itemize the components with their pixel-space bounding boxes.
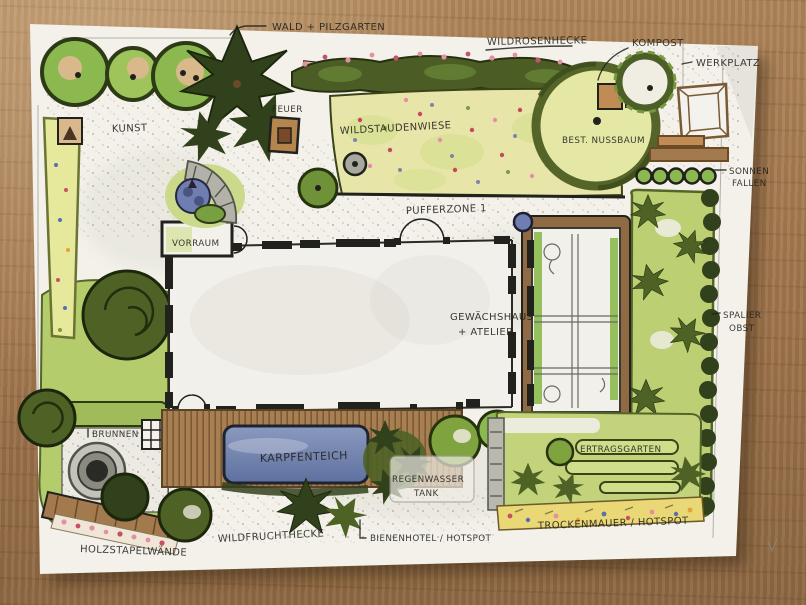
shrub-center-dot <box>315 185 321 191</box>
label-werkplatz: WERKPLATZ <box>696 58 760 69</box>
label-tank: TANK <box>413 489 439 499</box>
label-gewaechshaus-2: + ATELIER <box>458 327 513 338</box>
label-regenwasser: REGENWASSER <box>392 475 464 485</box>
boulder-dot <box>352 161 358 167</box>
label-vorraum: VORRAUM <box>172 239 220 249</box>
label-feuer: FEUER <box>272 105 303 115</box>
label-obst: OBST <box>729 324 755 334</box>
label-wildrosenhecke: WILDROSENHECKE <box>487 35 588 48</box>
label-best-nussbaum: BEST. NUSSBAUM <box>562 136 645 146</box>
label-gewaechshaus-1: GEWÄCHSHAUS <box>450 310 533 323</box>
label-sonnenfallen-1: SONNEN <box>729 167 769 177</box>
photo-of-garden-plan: WALD + PILZGARTEN WILDROSENHECKE KOMPOST… <box>0 0 806 605</box>
label-bienenhotel: BIENENHOTEL / HOTSPOT <box>370 534 492 544</box>
label-kunst: KUNST <box>112 123 148 135</box>
productive-garden <box>488 412 709 510</box>
label-ertragsgarten: ERTRAGSGARTEN <box>580 445 661 455</box>
leader-spalierobst <box>712 313 720 314</box>
label-wald-pilzgarten: WALD + PILZGARTEN <box>272 22 385 33</box>
label-kompost: KOMPOST <box>632 38 684 49</box>
garden-plan-drawing: WALD + PILZGARTEN WILDROSENHECKE KOMPOST… <box>0 0 806 605</box>
raised-bed-3 <box>600 482 680 493</box>
water-basin <box>514 213 532 231</box>
raised-bed-2 <box>566 461 678 474</box>
fire-place <box>269 117 299 153</box>
label-sonnenfallen-2: FALLEN <box>732 179 767 189</box>
label-brunnen: BRUNNEN <box>92 430 139 440</box>
label-spalier: SPALIER <box>723 311 761 321</box>
